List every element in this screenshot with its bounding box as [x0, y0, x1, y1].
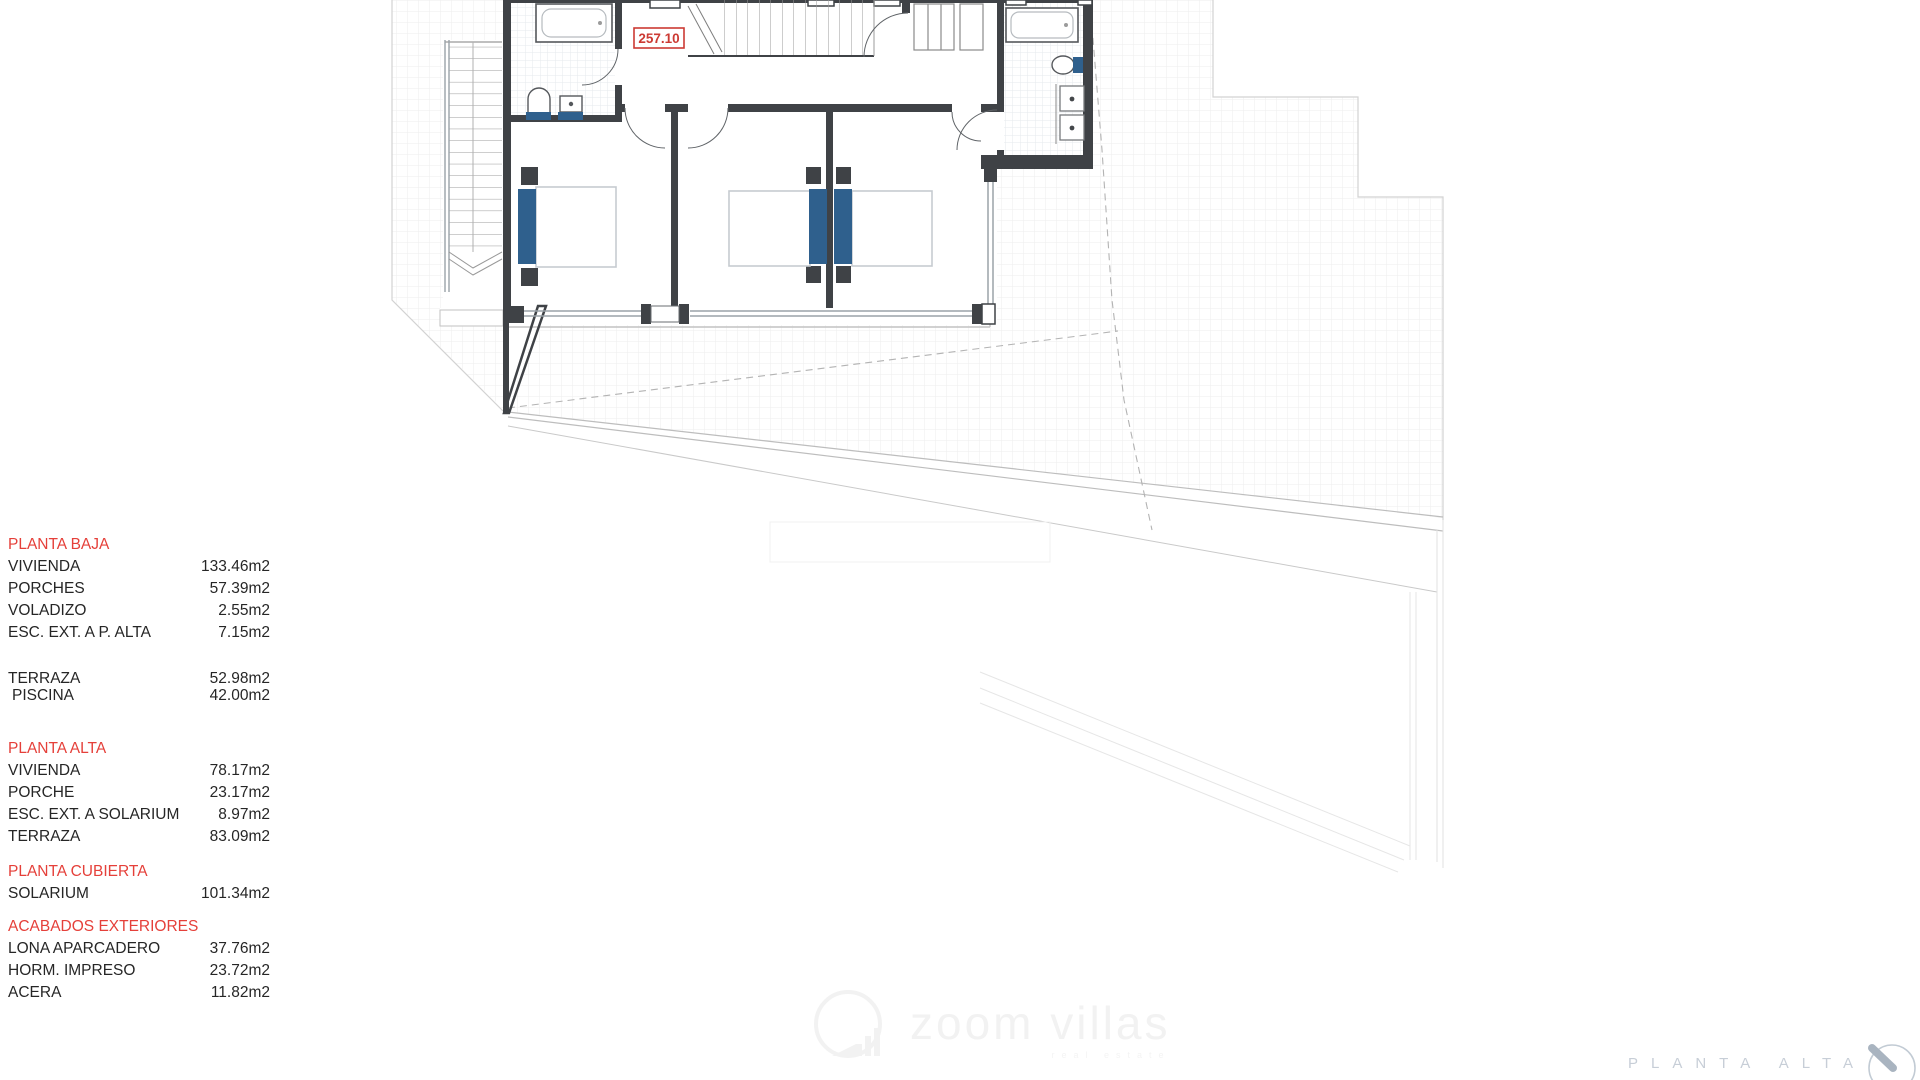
legend-row: PORCHES57.39m2	[8, 578, 270, 600]
legend-item-label: PISCINA	[8, 687, 74, 704]
legend-item-label: PORCHES	[8, 578, 85, 600]
legend-item-value: 83.09m2	[210, 826, 270, 848]
legend-section: PLANTA CUBIERTASOLARIUM101.34m2	[8, 861, 270, 905]
legend-item-value: 57.39m2	[210, 578, 270, 600]
legend-item-value: 52.98m2	[210, 670, 270, 687]
legend-row: ESC. EXT. A SOLARIUM8.97m2	[8, 804, 270, 826]
legend-item-label: ESC. EXT. A SOLARIUM	[8, 804, 179, 826]
legend-row: LONA APARCADERO37.76m2	[8, 938, 270, 960]
legend-section-header: ACABADOS EXTERIORES	[8, 916, 270, 938]
legend-row: VIVIENDA78.17m2	[8, 760, 270, 782]
legend-row: ACERA11.82m2	[8, 982, 270, 1004]
legend-section: TERRAZA52.98m2PISCINA42.00m2	[8, 670, 270, 704]
legend-item-value: 7.15m2	[218, 622, 270, 644]
legend-item-label: TERRAZA	[8, 826, 80, 848]
legend-row: TERRAZA52.98m2	[8, 670, 270, 687]
watermark-tagline: real estate	[896, 1050, 1171, 1060]
legend-item-value: 78.17m2	[210, 760, 270, 782]
legend-item-label: SOLARIUM	[8, 883, 89, 905]
sheet-title: PLANTA ALTA	[1628, 1055, 1866, 1072]
legend-item-label: LONA APARCADERO	[8, 938, 160, 960]
legend-row: VOLADIZO2.55m2	[8, 600, 270, 622]
legend-section-header: PLANTA ALTA	[8, 738, 270, 760]
legend-item-label: VIVIENDA	[8, 556, 80, 578]
toilet-icon	[528, 88, 550, 113]
legend-item-label: PORCHE	[8, 782, 74, 804]
legend-item-label: TERRAZA	[8, 670, 80, 687]
watermark-brand: zoom villas	[896, 1000, 1171, 1046]
legend-item-value: 8.97m2	[218, 804, 270, 826]
floor-plan-drawing: 257.10	[0, 0, 1920, 1080]
legend-row: PISCINA42.00m2	[8, 687, 270, 704]
legend: PLANTA BAJAVIVIENDA133.46m2PORCHES57.39m…	[8, 534, 270, 1004]
area-label-text: 257.10	[638, 31, 679, 46]
legend-item-value: 2.55m2	[218, 600, 270, 622]
legend-row: ESC. EXT. A P. ALTA7.15m2	[8, 622, 270, 644]
legend-item-label: ESC. EXT. A P. ALTA	[8, 622, 151, 644]
legend-section: ACABADOS EXTERIORESLONA APARCADERO37.76m…	[8, 916, 270, 1004]
legend-item-label: VOLADIZO	[8, 600, 86, 622]
watermark: zoom villas real estate	[812, 988, 1171, 1060]
legend-section: PLANTA ALTAVIVIENDA78.17m2PORCHE23.17m2E…	[8, 738, 270, 848]
legend-item-value: 23.17m2	[210, 782, 270, 804]
interior-staircase	[688, 0, 874, 56]
closet	[914, 4, 983, 50]
legend-item-value: 133.46m2	[201, 556, 270, 578]
legend-section-header: PLANTA BAJA	[8, 534, 270, 556]
legend-row: TERRAZA83.09m2	[8, 826, 270, 848]
legend-item-value: 101.34m2	[201, 883, 270, 905]
legend-section: PLANTA BAJAVIVIENDA133.46m2PORCHES57.39m…	[8, 534, 270, 644]
zoom-villas-logo-icon	[812, 988, 896, 1060]
toilet-icon	[1052, 56, 1074, 74]
area-label: 257.10	[634, 28, 684, 48]
compass-needle-icon	[1864, 1038, 1920, 1080]
legend-item-value: 11.82m2	[211, 982, 270, 1004]
legend-item-label: VIVIENDA	[8, 760, 80, 782]
architectural-sheet: 257.10 PLANTA BAJAVIVIENDA133.46m2PORCHE…	[0, 0, 1920, 1080]
legend-item-label: ACERA	[8, 982, 61, 1004]
legend-item-value: 42.00m2	[210, 687, 270, 704]
legend-section-header: PLANTA CUBIERTA	[8, 861, 270, 883]
legend-row: SOLARIUM101.34m2	[8, 883, 270, 905]
legend-row: PORCHE23.17m2	[8, 782, 270, 804]
legend-item-value: 23.72m2	[210, 960, 270, 982]
legend-item-label: HORM. IMPRESO	[8, 960, 135, 982]
legend-row: VIVIENDA133.46m2	[8, 556, 270, 578]
legend-item-value: 37.76m2	[210, 938, 270, 960]
legend-row: HORM. IMPRESO23.72m2	[8, 960, 270, 982]
